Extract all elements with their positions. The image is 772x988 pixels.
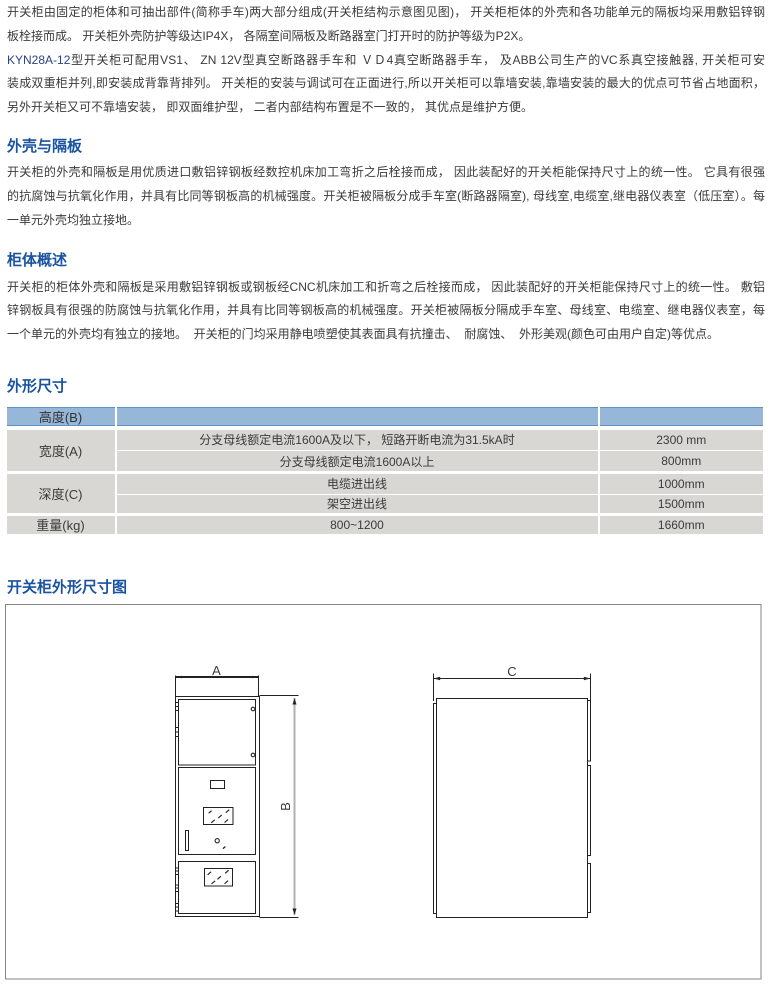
- svg-text:B: B: [278, 802, 293, 811]
- svg-text:C: C: [507, 664, 516, 679]
- svg-text:A: A: [212, 663, 221, 678]
